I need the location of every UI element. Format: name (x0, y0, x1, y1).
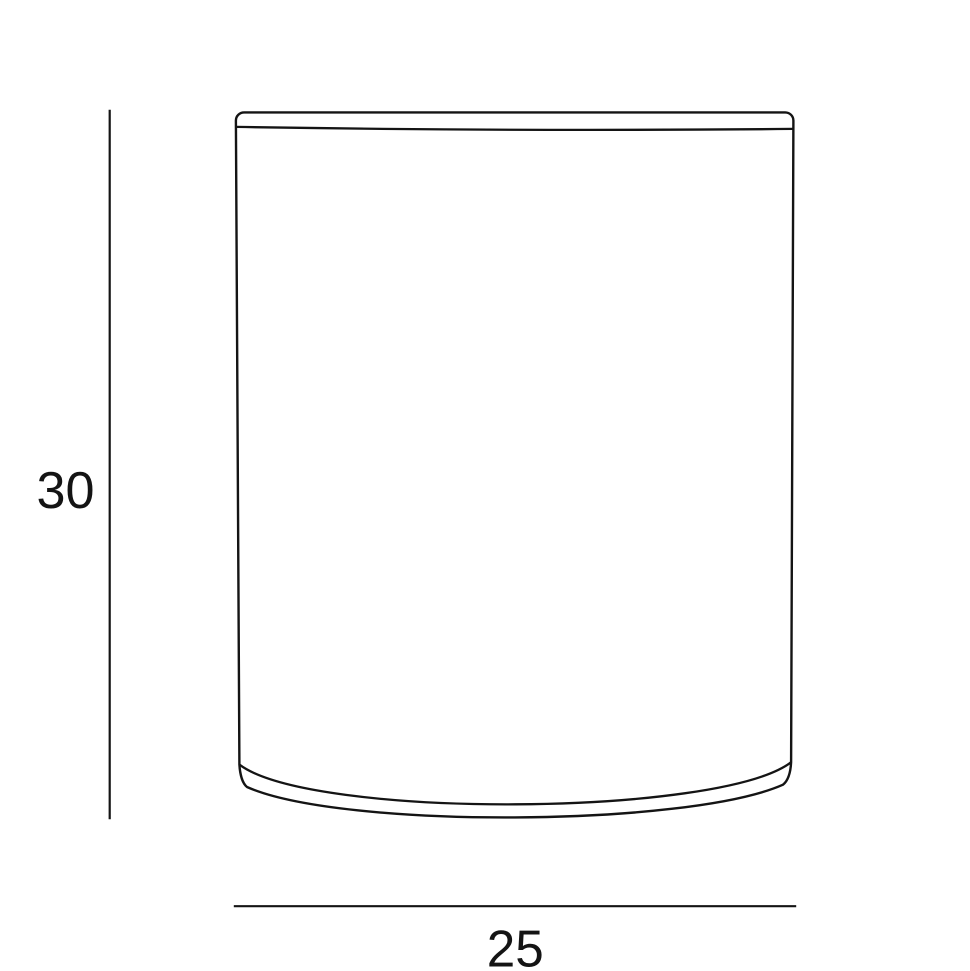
svg-text:30: 30 (37, 462, 95, 520)
svg-text:25: 25 (487, 921, 544, 971)
